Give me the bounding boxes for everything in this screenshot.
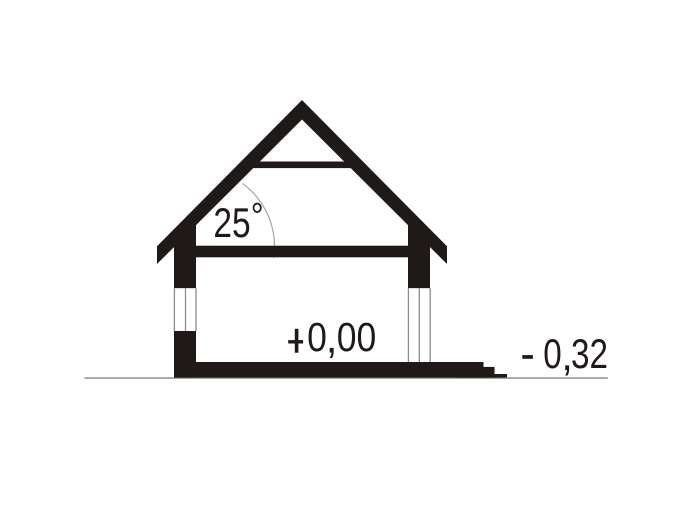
svg-text:0: 0	[307, 315, 327, 361]
svg-text:0: 0	[543, 331, 561, 377]
svg-text:°: °	[251, 195, 264, 237]
svg-text:32: 32	[571, 331, 608, 377]
svg-text:,: ,	[326, 313, 337, 361]
svg-text:25: 25	[213, 200, 250, 246]
svg-text:00: 00	[337, 315, 377, 361]
